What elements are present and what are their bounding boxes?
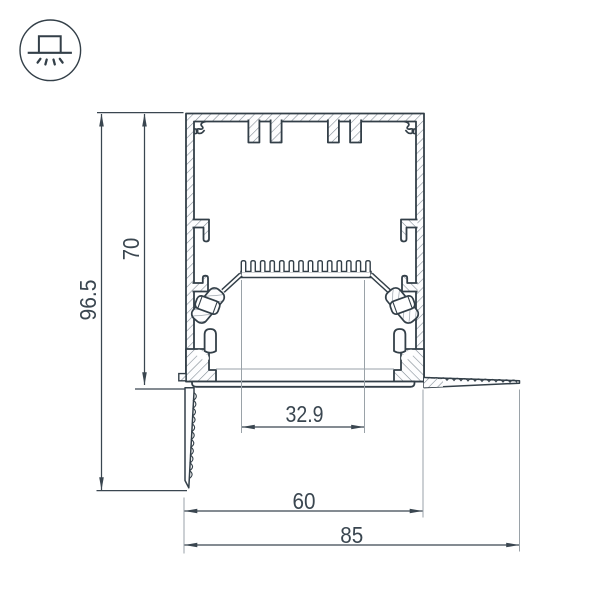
svg-text:85: 85 [340, 522, 363, 548]
svg-text:96.5: 96.5 [75, 280, 101, 321]
svg-text:70: 70 [118, 238, 144, 261]
svg-text:60: 60 [293, 488, 316, 514]
svg-text:32.9: 32.9 [286, 401, 324, 427]
